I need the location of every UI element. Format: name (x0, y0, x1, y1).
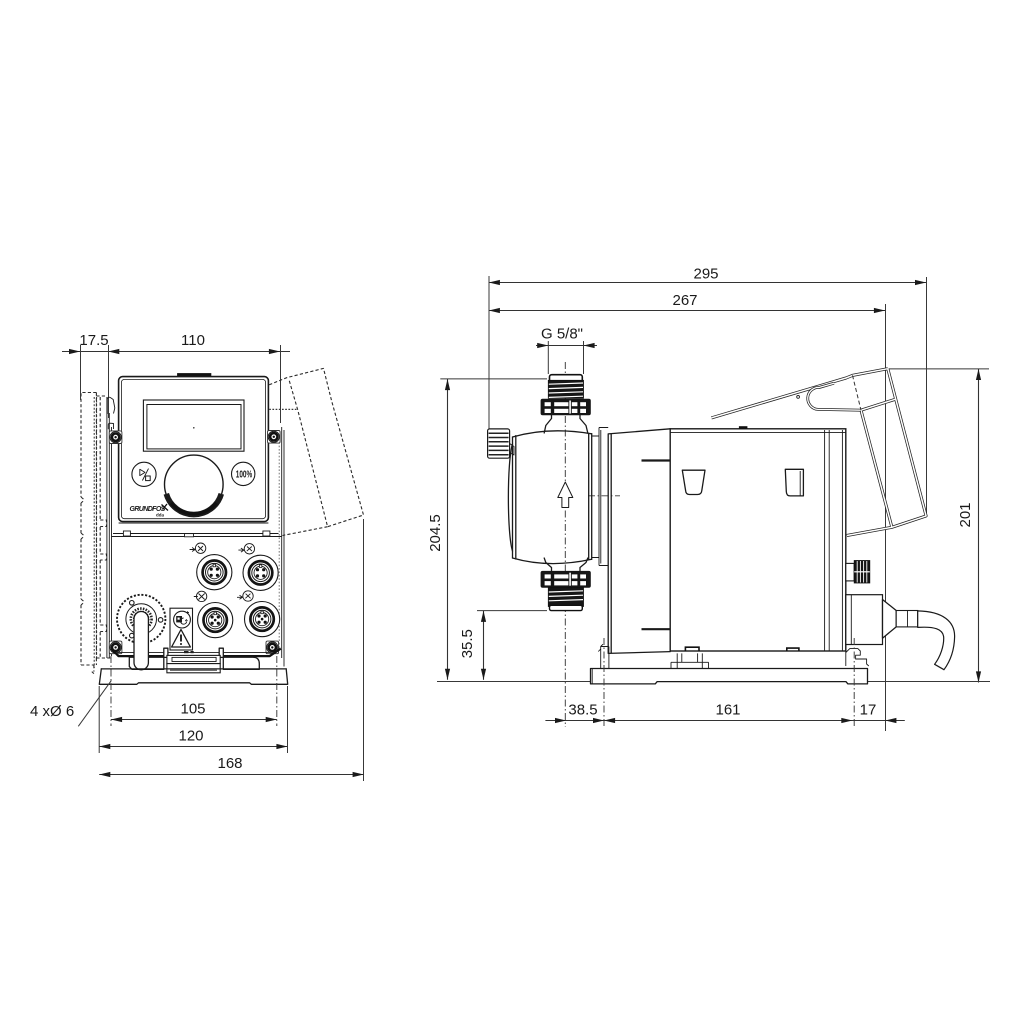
svg-text:120: 120 (178, 728, 203, 745)
svg-text:161: 161 (715, 702, 740, 719)
svg-text:35.5: 35.5 (459, 629, 476, 658)
svg-text:267: 267 (672, 292, 697, 309)
svg-text:204.5: 204.5 (427, 514, 444, 552)
svg-text:G 5/8": G 5/8" (541, 326, 583, 343)
svg-text:201: 201 (957, 502, 974, 527)
svg-text:17: 17 (860, 702, 877, 719)
svg-text:295: 295 (693, 266, 718, 283)
svg-text:100%: 100% (236, 470, 253, 481)
svg-text:17.5: 17.5 (79, 332, 108, 349)
svg-text:dda: dda (156, 513, 164, 518)
svg-text:110: 110 (181, 332, 205, 349)
svg-text:168: 168 (217, 755, 242, 772)
svg-text:105: 105 (180, 701, 205, 718)
svg-text:38.5: 38.5 (568, 702, 597, 719)
svg-text:4 xØ 6: 4 xØ 6 (30, 703, 74, 720)
